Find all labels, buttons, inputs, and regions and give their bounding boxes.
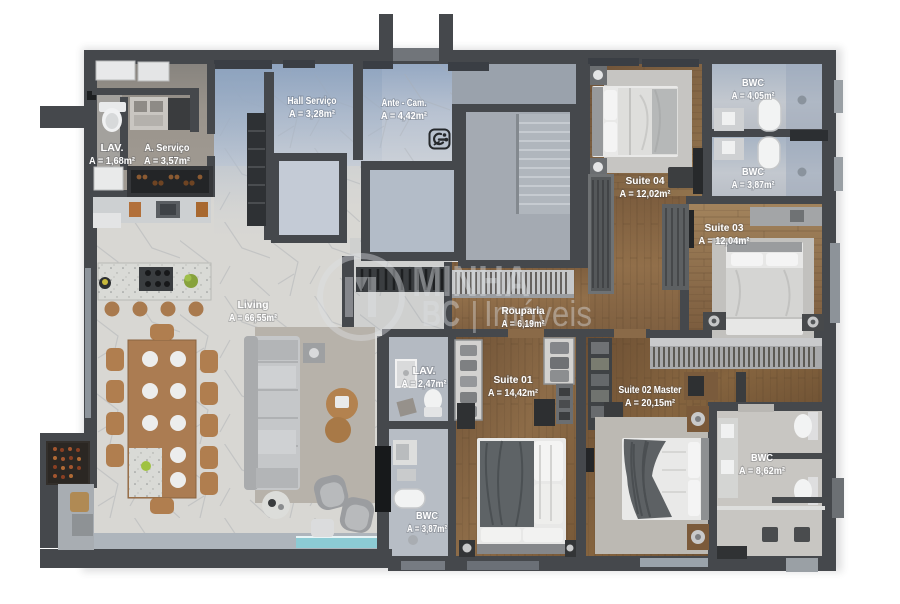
svg-text:A = 12,02m²: A = 12,02m²	[620, 188, 671, 200]
svg-text:A. Serviço: A. Serviço	[145, 142, 190, 154]
svg-text:BWC: BWC	[751, 452, 773, 464]
svg-text:A = 4,05m²: A = 4,05m²	[732, 90, 775, 102]
svg-text:Suite 03: Suite 03	[705, 222, 744, 234]
svg-text:Ante - Cam.: Ante - Cam.	[382, 97, 427, 109]
svg-text:LAV.: LAV.	[101, 142, 124, 154]
svg-text:A = 3,57m²: A = 3,57m²	[144, 155, 190, 167]
svg-text:Rouparia: Rouparia	[502, 305, 545, 317]
svg-text:Hall Serviço: Hall Serviço	[288, 95, 337, 107]
svg-text:BC: BC	[422, 293, 460, 334]
svg-text:A = 4,42m²: A = 4,42m²	[381, 110, 427, 122]
svg-text:LAV.: LAV.	[413, 365, 436, 377]
svg-text:A = 14,42m²: A = 14,42m²	[488, 387, 538, 399]
svg-text:Suite 02 Master: Suite 02 Master	[619, 384, 682, 396]
svg-text:A = 2,47m²: A = 2,47m²	[402, 378, 447, 390]
svg-text:Living: Living	[238, 299, 269, 311]
svg-text:Suite 04: Suite 04	[626, 175, 665, 187]
svg-text:A = 3,87m²: A = 3,87m²	[732, 179, 775, 191]
svg-text:A = 12,04m²: A = 12,04m²	[699, 235, 750, 247]
svg-text:A = 20,15m²: A = 20,15m²	[625, 397, 675, 409]
svg-text:A = 66,55m²: A = 66,55m²	[229, 312, 277, 324]
svg-text:BWC: BWC	[742, 77, 764, 89]
svg-text:A = 3,87m²: A = 3,87m²	[407, 523, 447, 535]
svg-text:BWC: BWC	[416, 510, 438, 522]
svg-text:BWC: BWC	[742, 166, 764, 178]
svg-text:A = 8,62m²: A = 8,62m²	[739, 465, 785, 477]
svg-text:A = 1,68m²: A = 1,68m²	[89, 155, 135, 167]
svg-text:A = 6,19m²: A = 6,19m²	[502, 318, 545, 330]
svg-text:Suite 01: Suite 01	[494, 374, 533, 386]
svg-text:|: |	[470, 296, 479, 334]
svg-text:A = 3,28m²: A = 3,28m²	[289, 108, 335, 120]
